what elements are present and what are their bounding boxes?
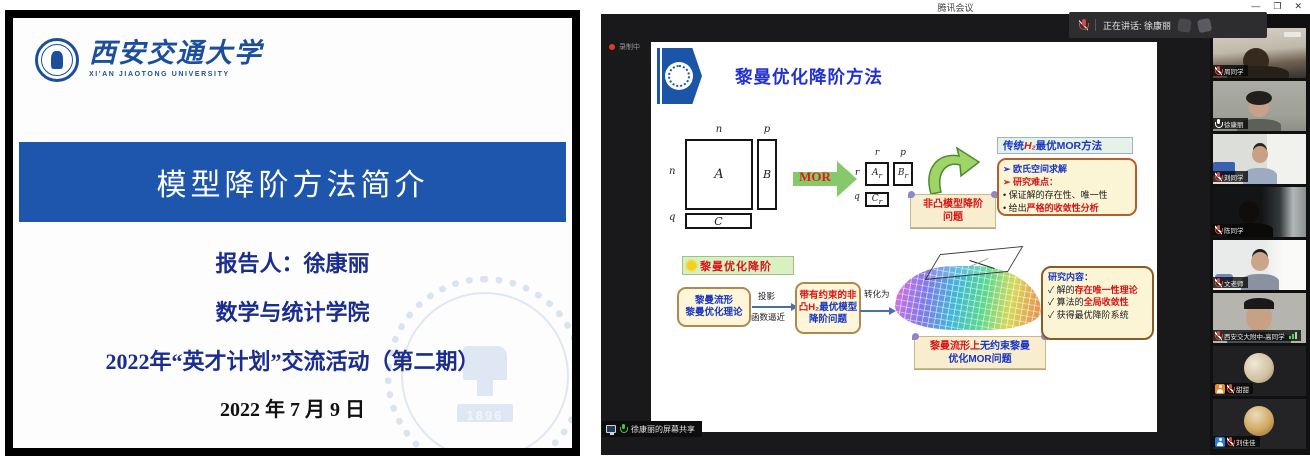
minimize-button[interactable]: —: [1251, 1, 1260, 12]
participant-name-chip: 周同学: [1213, 65, 1248, 76]
trad-item: ➢ 研究难点：: [1003, 176, 1131, 189]
title-slide: 1896 西安交通大学 XI'AN JIAOTONG UNIVERSITY 模型…: [13, 18, 572, 448]
share-label: 徐康丽的屏幕共享: [631, 424, 695, 435]
dim-q2-left: q: [854, 192, 860, 202]
mic-muted-icon: [1215, 225, 1222, 235]
xjtu-name-cn: 西安交通大学: [89, 38, 263, 68]
slide-title: 模型降阶方法简介: [157, 160, 429, 204]
mic-muted-icon: [1215, 278, 1222, 288]
dim-p-top: p: [757, 124, 777, 135]
participant-tile[interactable]: 徐康丽: [1213, 81, 1306, 131]
meeting-window: 腾讯会议 — ❐ ✕ 录制中 正在讲话: 徐康丽 黎曼优化降阶方法 n n p …: [601, 0, 1310, 455]
participant-name: 陈同学: [1224, 225, 1244, 235]
divider: [1095, 19, 1096, 31]
research-content-box: 研究内容： ✓ 解的存在唯一性理论 ✓ 算法的全局收敛性 ✓ 获得最优降阶系统: [1041, 266, 1154, 340]
user-badge-icon: [1215, 384, 1225, 394]
date-line: 2022 年 7 月 9 日: [13, 393, 572, 422]
mic-muted-icon: [1227, 437, 1234, 447]
participant-name: 甜甜: [1236, 384, 1249, 394]
xjtu-logo: 西安交通大学 XI'AN JIAOTONG UNIVERSITY: [35, 38, 263, 82]
participant-name: 周同学: [1224, 66, 1244, 76]
mic-muted-icon: [1227, 384, 1234, 394]
participant-tile[interactable]: 刘佳佳: [1213, 399, 1306, 449]
participant-name: 刘佳佳: [1236, 437, 1256, 447]
mic-muted-icon: [1215, 172, 1222, 182]
speaking-label: 正在讲话: 徐康丽: [1103, 19, 1171, 32]
mic-muted-icon[interactable]: [1079, 19, 1088, 32]
reaction-icon[interactable]: [1197, 17, 1212, 32]
curved-arrow-icon: [921, 146, 983, 200]
matrix-Br: Br: [893, 162, 913, 186]
arrow1-label-top: 投影: [758, 290, 775, 302]
dim-p2-top: p: [893, 148, 913, 158]
riemann-chip: 黎曼优化降阶: [682, 256, 794, 275]
event-line: 2022年“英才计划”交流活动（第二期）: [13, 344, 572, 376]
dim-r-top: r: [865, 148, 889, 158]
dim-n-left: n: [669, 166, 675, 177]
participant-name: 徐康丽: [1224, 119, 1244, 129]
screen-share-status[interactable]: 徐康丽的屏幕共享: [602, 421, 702, 437]
slide-title-band: 模型降阶方法简介: [19, 142, 566, 222]
recording-indicator[interactable]: 录制中: [609, 42, 640, 52]
participant-name-chip: 西安交大附中-高同学: [1213, 330, 1301, 341]
participant-tile[interactable]: 文老师: [1213, 240, 1306, 290]
matrix-Ar: Ar: [865, 162, 889, 186]
xjtu-name-en: XI'AN JIAOTONG UNIVERSITY: [89, 71, 263, 78]
participant-tile[interactable]: 甜甜: [1213, 346, 1306, 396]
dim-r-left: r: [855, 168, 859, 178]
matrix-B: B: [757, 139, 777, 210]
user-badge-icon: [1215, 437, 1225, 447]
avatar: [1244, 406, 1274, 436]
maximize-button[interactable]: ❐: [1273, 1, 1281, 12]
participant-name-chip: 刘同学: [1213, 171, 1248, 182]
trad-item: ➢ 欧氏空间求解: [1003, 163, 1131, 176]
traditional-mor-header: 传统H₂最优MOR方法: [997, 137, 1133, 154]
nonconvex-line2: 问题: [911, 211, 995, 224]
audio-on-icon: [620, 424, 627, 434]
speaking-banner: 正在讲话: 徐康丽: [1069, 12, 1267, 38]
participant-name-chip: 陈同学: [1213, 224, 1248, 235]
matrix-Cr: Cr: [865, 192, 889, 207]
flow-box-constrained: 带有约束的非 凸H₂最优模型 降阶问题: [795, 282, 861, 334]
participant-name-chip: 徐康丽: [1213, 118, 1248, 129]
participant-strip: 周同学 徐康丽 刘同学 陈同学: [1210, 14, 1310, 455]
riemann-chip-label: 黎曼优化降阶: [700, 258, 772, 274]
xjtu-seal-icon: [35, 38, 79, 82]
dim-n-top: n: [685, 124, 753, 135]
participant-name-chip: 文老师: [1213, 277, 1248, 288]
trad-item: • 保证解的存在性、唯一性: [1003, 189, 1131, 202]
participant-tile[interactable]: 刘同学: [1213, 134, 1306, 184]
school-line: 数学与统计学院: [13, 295, 572, 327]
nonconvex-scroll-box: 非凸模型降阶 问题: [910, 194, 996, 228]
screen-share-icon: [606, 425, 616, 433]
mic-muted-icon: [1215, 331, 1222, 341]
recording-label: 录制中: [619, 42, 640, 52]
slide-black-frame: 1896 西安交通大学 XI'AN JIAOTONG UNIVERSITY 模型…: [5, 10, 580, 456]
matrix-C: C: [685, 213, 752, 229]
participant-name-chip: 甜甜: [1213, 383, 1253, 394]
riemann-scroll-box: 黎曼流形上无约束黎曼 优化MOR问题: [914, 336, 1046, 369]
participant-name: 西安交大附中-高同学: [1224, 331, 1285, 341]
shared-screen-slide: 黎曼优化降阶方法 n n p q A B C MOR r r p q Ar Br…: [651, 42, 1157, 432]
trad-item: • 给出严格的收敛性分析: [1003, 202, 1131, 215]
sun-bullet-icon: [687, 261, 696, 270]
flow-box-theory: 黎曼流形 黎曼优化理论: [677, 287, 751, 327]
arrow1-label-bottom: 函数逼近: [751, 311, 785, 323]
left-slide-photo: 1896 西安交通大学 XI'AN JIAOTONG UNIVERSITY 模型…: [0, 0, 584, 462]
participant-name: 刘同学: [1224, 172, 1244, 182]
traditional-mor-box: ➢ 欧氏空间求解 ➢ 研究难点： • 保证解的存在性、唯一性 • 给出严格的收敛…: [997, 158, 1137, 216]
mor-label: MOR: [787, 169, 843, 185]
recording-dot-icon: [609, 44, 615, 50]
xjtu-seal-icon: [665, 62, 693, 90]
network-signal-icon: [1289, 332, 1297, 339]
slide-title: 黎曼优化降阶方法: [735, 64, 883, 89]
mic-muted-icon: [1215, 66, 1222, 76]
research-title: 研究内容：: [1048, 271, 1147, 284]
flow-arrow-2: [860, 310, 890, 312]
participant-tile[interactable]: 陈同学: [1213, 187, 1306, 237]
participant-tile[interactable]: 西安交大附中-高同学: [1213, 293, 1306, 343]
participant-name-chip: 刘佳佳: [1213, 436, 1260, 447]
dim-q-left: q: [669, 212, 675, 223]
slide-logo-bar: [657, 48, 660, 104]
nonconvex-line1: 非凸模型降阶: [911, 198, 995, 211]
close-button[interactable]: ✕: [1294, 1, 1302, 12]
avatar: [1244, 353, 1274, 383]
reaction-icon[interactable]: [1177, 18, 1192, 33]
xjtu-flag-logo: [662, 48, 702, 104]
presenter-line: 报告人：徐康丽: [13, 246, 572, 278]
manifold-surface-plot: [891, 250, 1046, 336]
participant-name: 文老师: [1224, 278, 1244, 288]
matrix-A: A: [685, 139, 753, 210]
flow-arrow-1: [752, 306, 792, 308]
arrow2-label: 转化为: [864, 288, 882, 300]
mic-on-icon: [1215, 119, 1222, 129]
